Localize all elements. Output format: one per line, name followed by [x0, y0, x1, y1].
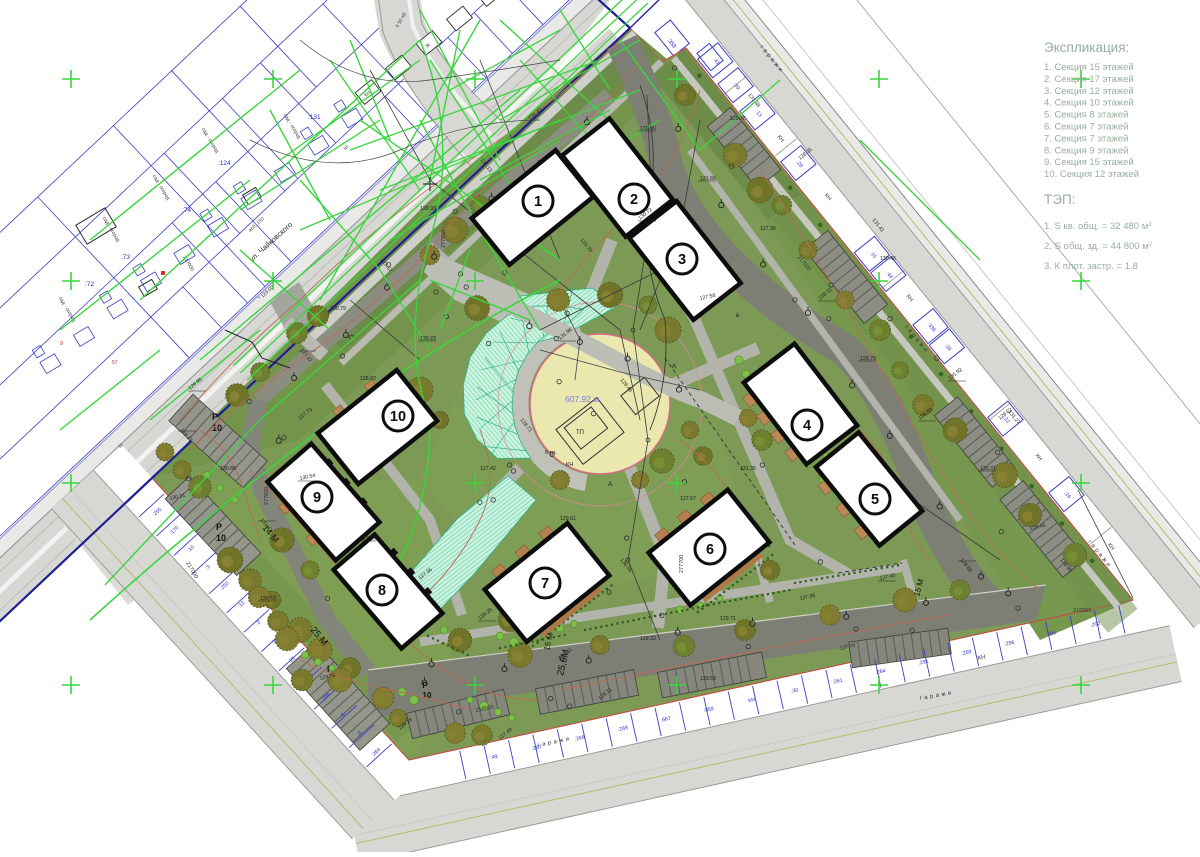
svg-text::73: :73: [121, 254, 130, 261]
svg-text::72: :72: [85, 281, 94, 288]
svg-text:ТП: ТП: [576, 430, 584, 436]
svg-text:277700: 277700: [679, 555, 685, 573]
svg-text:129.76: 129.76: [730, 116, 746, 122]
svg-text:130.79: 130.79: [330, 306, 346, 312]
svg-text:в: в: [736, 313, 739, 319]
svg-text:7: 7: [541, 576, 549, 592]
svg-text:4. Секция 10 этажей: 4. Секция 10 этажей: [1044, 98, 1134, 109]
svg-text:Р: Р: [212, 412, 218, 422]
svg-text:57: 57: [112, 360, 118, 366]
svg-text:9. Секция 15 этажей: 9. Секция 15 этажей: [1044, 157, 1134, 168]
svg-text:5: 5: [871, 492, 879, 508]
svg-text:6: 6: [706, 542, 714, 558]
svg-text:127.42: 127.42: [480, 466, 496, 472]
svg-text:ТЭП:: ТЭП:: [1044, 192, 1075, 207]
svg-text::124: :124: [218, 160, 231, 167]
svg-text:128.82: 128.82: [360, 376, 376, 382]
svg-text:9: 9: [60, 341, 63, 347]
svg-text:277850: 277850: [264, 487, 270, 505]
svg-text:Экспликация:: Экспликация:: [1044, 40, 1129, 55]
svg-text::131: :131: [308, 114, 321, 121]
svg-text:1: 1: [534, 194, 542, 210]
svg-text:6. Секция 7 этажей: 6. Секция 7 этажей: [1044, 122, 1128, 133]
svg-text:10: 10: [390, 409, 406, 425]
svg-text:129.61: 129.61: [560, 516, 576, 522]
svg-text:Р: Р: [216, 522, 222, 532]
svg-text:2. Секция 17 этажей: 2. Секция 17 этажей: [1044, 74, 1134, 85]
svg-text:6 тр.: 6 тр.: [545, 450, 557, 456]
svg-text:3. К плот. застр. = 1.8: 3. К плот. застр. = 1.8: [1044, 261, 1138, 272]
svg-text:5. Секция 8 этажей: 5. Секция 8 этажей: [1044, 110, 1128, 121]
svg-text:2. S общ. зд. = 44 800 м2: 2. S общ. зд. = 44 800 м2: [1044, 241, 1153, 252]
svg-text:127.67: 127.67: [680, 496, 696, 502]
svg-text:КН: КН: [566, 462, 573, 468]
svg-text:130.89: 130.89: [220, 466, 236, 472]
svg-text:7. Секция 7 этажей: 7. Секция 7 этажей: [1044, 133, 1128, 144]
svg-text:А: А: [608, 481, 613, 488]
svg-text:277850: 277850: [441, 230, 447, 248]
svg-text:127.36: 127.36: [760, 226, 776, 232]
svg-text:216950: 216950: [1073, 608, 1091, 614]
svg-text:1. S кв. общ. = 32 480 м2: 1. S кв. общ. = 32 480 м2: [1044, 221, 1152, 232]
svg-text:4: 4: [803, 418, 811, 434]
svg-text:1. Секция 15 этажей: 1. Секция 15 этажей: [1044, 62, 1134, 73]
svg-text:8. Секция 9 этажей: 8. Секция 9 этажей: [1044, 145, 1128, 156]
svg-text:130.46: 130.46: [880, 256, 896, 262]
svg-text:129.71: 129.71: [720, 616, 736, 622]
svg-text:10: 10: [216, 533, 226, 543]
svg-text:10. Секция 12 этажей: 10. Секция 12 этажей: [1044, 169, 1139, 180]
svg-text:129.53: 129.53: [700, 676, 716, 682]
svg-text:128.93: 128.93: [420, 206, 436, 212]
svg-text:9: 9: [313, 490, 321, 506]
svg-text:8: 8: [378, 583, 386, 599]
svg-text::74: :74: [182, 207, 191, 214]
svg-text:3. Секция 12 этажей: 3. Секция 12 этажей: [1044, 86, 1134, 97]
svg-text:3: 3: [678, 252, 686, 268]
svg-text:607.92 м: 607.92 м: [565, 394, 599, 404]
svg-text:129.32: 129.32: [640, 636, 656, 642]
svg-text:А: А: [672, 363, 677, 370]
svg-text:131.35: 131.35: [740, 466, 756, 472]
svg-text:2: 2: [630, 192, 638, 208]
